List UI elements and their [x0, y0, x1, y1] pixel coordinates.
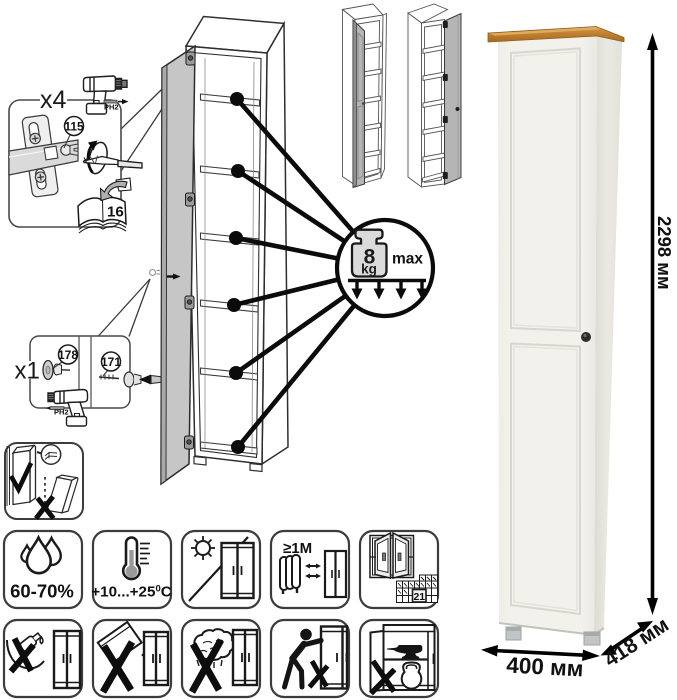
svg-text:2298 мм: 2298 мм: [654, 216, 675, 290]
svg-text:16: 16: [107, 204, 124, 221]
svg-text:400 мм: 400 мм: [506, 653, 584, 682]
svg-text:x4: x4: [40, 86, 67, 114]
svg-text:PH2: PH2: [104, 103, 119, 112]
svg-text:115: 115: [64, 120, 84, 134]
svg-text:kg: kg: [361, 262, 377, 277]
svg-text:178: 178: [58, 348, 78, 362]
svg-text:x1: x1: [15, 358, 40, 385]
svg-text:PH2: PH2: [54, 408, 69, 417]
svg-text:21: 21: [413, 591, 425, 603]
svg-text:max: max: [392, 251, 423, 268]
svg-text:171: 171: [101, 355, 121, 369]
svg-text:418 мм: 418 мм: [600, 613, 673, 671]
svg-text:60-70%: 60-70%: [10, 581, 74, 602]
